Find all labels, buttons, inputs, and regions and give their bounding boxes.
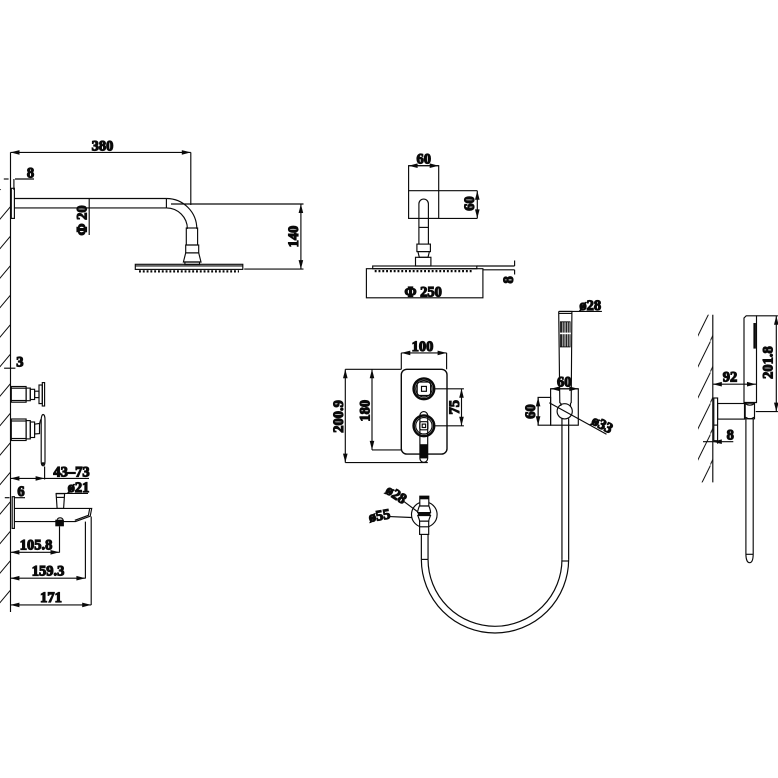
svg-text:75: 75 [447, 400, 463, 415]
svg-text:92: 92 [723, 370, 738, 386]
svg-text:140: 140 [286, 226, 302, 248]
svg-text:ø21: ø21 [68, 480, 90, 496]
svg-text:8: 8 [727, 428, 734, 444]
svg-text:105.8: 105.8 [20, 538, 53, 554]
svg-text:43–73: 43–73 [53, 465, 89, 481]
svg-text:201.8: 201.8 [761, 346, 777, 379]
svg-text:60: 60 [557, 375, 572, 391]
svg-text:6: 6 [17, 484, 24, 500]
svg-text:171: 171 [40, 590, 62, 606]
svg-text:60: 60 [523, 404, 539, 419]
svg-text:180: 180 [357, 400, 373, 422]
svg-text:Φ 250: Φ 250 [404, 284, 441, 300]
svg-text:100: 100 [412, 339, 434, 355]
svg-text:200.9: 200.9 [331, 400, 347, 433]
svg-text:8: 8 [501, 276, 517, 283]
svg-text:Φ 20: Φ 20 [75, 205, 91, 235]
svg-text:8: 8 [27, 166, 34, 182]
svg-text:60: 60 [417, 152, 432, 168]
svg-text:ø55: ø55 [367, 506, 391, 526]
svg-text:380: 380 [92, 139, 114, 155]
svg-text:ø28: ø28 [382, 482, 409, 507]
svg-text:3: 3 [16, 355, 23, 371]
svg-text:159.3: 159.3 [32, 564, 65, 580]
svg-text:ø28: ø28 [579, 298, 601, 314]
svg-text:60: 60 [462, 196, 478, 211]
svg-text:ø33: ø33 [589, 413, 616, 437]
